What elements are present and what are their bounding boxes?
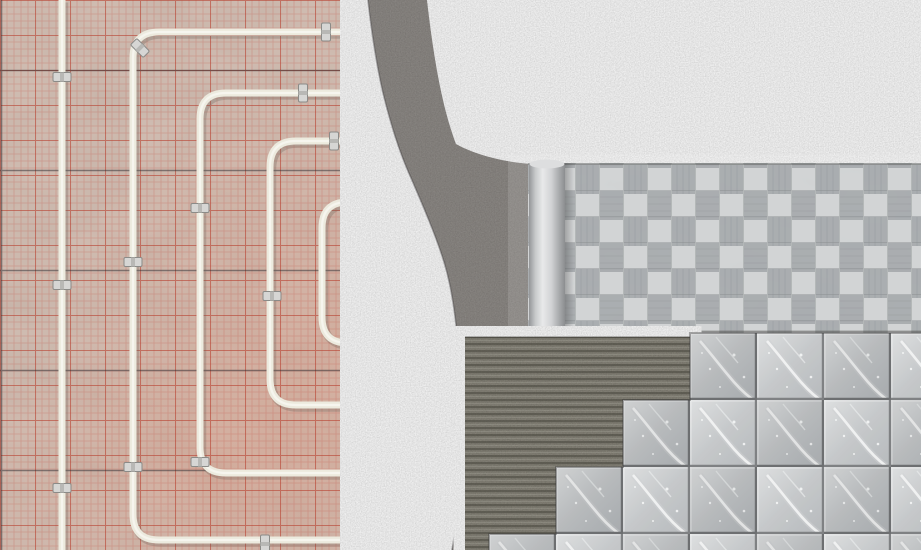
pipe-clip xyxy=(299,84,308,102)
pipe-clip xyxy=(53,281,71,290)
pipe-clip xyxy=(191,458,209,467)
pipe-clip xyxy=(53,484,71,493)
pipe-clip xyxy=(124,463,142,472)
pipe-clip xyxy=(362,334,371,352)
pipe-clip xyxy=(356,464,365,482)
pipe-clip xyxy=(53,73,71,82)
underfloor-heating-layers-photo: Top view of underfloor heating installat… xyxy=(0,0,921,550)
pipe-clip xyxy=(322,23,331,41)
pipe-clip xyxy=(359,193,368,211)
pipe-clip xyxy=(330,132,339,150)
pipe-clip xyxy=(261,535,270,550)
vinyl-roll-cylinder xyxy=(529,160,565,338)
pipe-clip xyxy=(191,204,209,213)
pipe-clip xyxy=(263,292,281,301)
vinyl-flooring-layer xyxy=(528,160,921,338)
underfloor-heating-photo: Top view of underfloor heating installat… xyxy=(0,0,921,550)
pipe-clip xyxy=(124,258,142,267)
